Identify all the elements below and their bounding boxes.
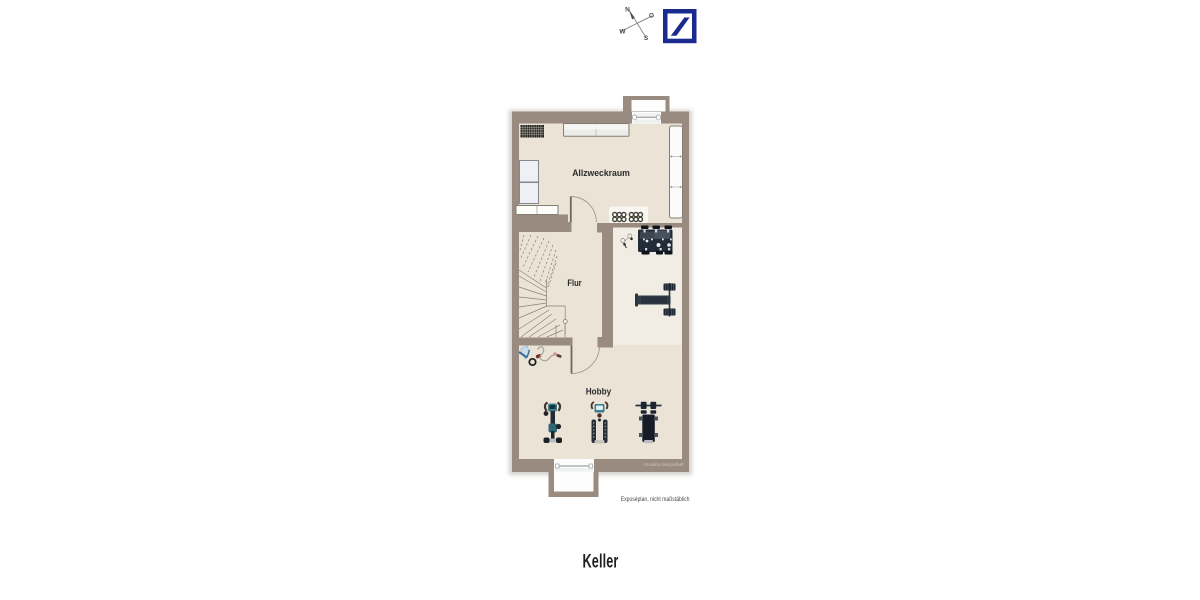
svg-text:Flur: Flur bbox=[567, 278, 582, 288]
svg-text:N: N bbox=[625, 7, 630, 14]
svg-text:Keller: Keller bbox=[583, 551, 619, 572]
svg-text:Hobby: Hobby bbox=[586, 386, 612, 396]
svg-text:W: W bbox=[619, 29, 626, 36]
svg-text:S: S bbox=[644, 35, 649, 42]
svg-text:Allzweckraum: Allzweckraum bbox=[572, 168, 630, 178]
svg-text:Grundriss beispielhaft: Grundriss beispielhaft bbox=[644, 462, 684, 467]
svg-text:Exposéplan, nicht maßstäblich: Exposéplan, nicht maßstäblich bbox=[621, 496, 690, 503]
svg-text:O: O bbox=[649, 13, 654, 20]
